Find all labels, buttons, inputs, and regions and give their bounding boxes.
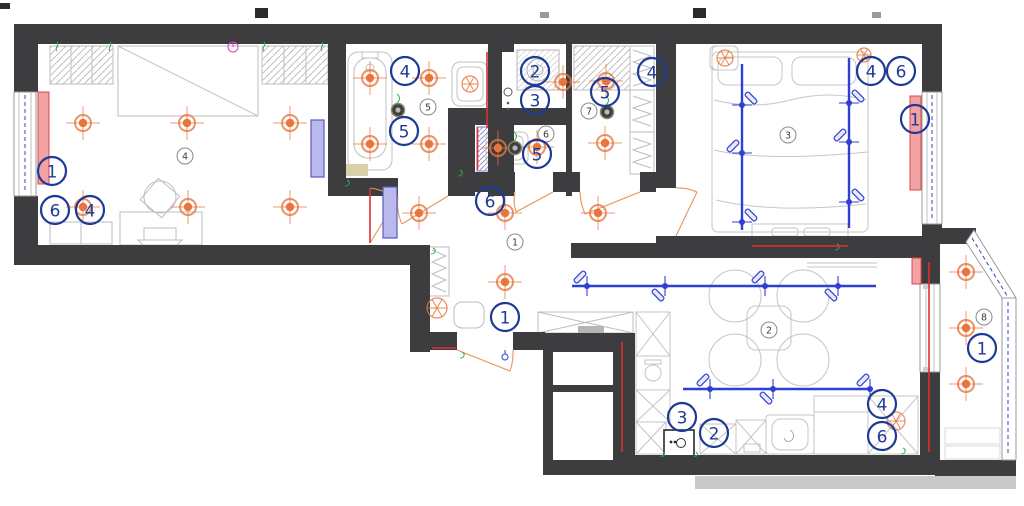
callout-6: 6 bbox=[41, 196, 69, 224]
track-spot-icon bbox=[696, 373, 709, 386]
svg-text:6: 6 bbox=[50, 201, 61, 221]
callout-3: 3 bbox=[668, 403, 696, 431]
svg-text:6: 6 bbox=[543, 129, 549, 140]
closet-door bbox=[580, 192, 640, 214]
wc-door bbox=[514, 192, 553, 212]
bath-mat bbox=[346, 164, 368, 176]
ceiling-light-icon bbox=[273, 190, 307, 224]
svg-text:1: 1 bbox=[910, 110, 921, 130]
track-light bbox=[683, 373, 873, 404]
room-number: 5 bbox=[420, 99, 436, 115]
fridge bbox=[814, 396, 868, 454]
svg-text:2: 2 bbox=[530, 62, 541, 82]
floor-plan-page: 45673128 16445235456146114632 bbox=[0, 0, 1024, 506]
dimension-ticks bbox=[0, 3, 881, 18]
room-number: 8 bbox=[976, 309, 992, 325]
svg-text:4: 4 bbox=[182, 151, 188, 162]
room-number: 4 bbox=[177, 148, 193, 164]
svg-text:5: 5 bbox=[425, 102, 431, 113]
ceiling-light-icon bbox=[353, 127, 387, 161]
svg-text:1: 1 bbox=[500, 308, 511, 328]
ceiling-light-icon bbox=[581, 196, 615, 230]
pillow bbox=[718, 57, 782, 85]
door-panel bbox=[311, 120, 324, 177]
track-light bbox=[726, 64, 757, 230]
entrance-door-mark bbox=[502, 350, 508, 360]
ceiling-light-icon bbox=[588, 126, 622, 160]
svg-text:4: 4 bbox=[877, 395, 888, 415]
hall-furniture bbox=[429, 247, 633, 333]
callout-5: 5 bbox=[390, 117, 418, 145]
svg-text:5: 5 bbox=[399, 122, 410, 142]
service-strip bbox=[504, 88, 512, 110]
ceiling-light-icon bbox=[949, 367, 983, 401]
window-bedroom bbox=[922, 92, 942, 224]
window-living-balcony bbox=[920, 284, 940, 372]
track-spot-icon bbox=[744, 208, 757, 221]
wardrobe-left bbox=[50, 46, 113, 84]
svg-text:4: 4 bbox=[866, 62, 877, 82]
svg-text:5: 5 bbox=[600, 83, 611, 103]
track-spot-icon bbox=[726, 139, 739, 152]
oven bbox=[636, 356, 670, 390]
track-spot-icon bbox=[651, 288, 664, 301]
callout-1: 1 bbox=[491, 303, 519, 331]
svg-text:4: 4 bbox=[85, 201, 96, 221]
track-spot-icon bbox=[573, 270, 586, 283]
track-light bbox=[833, 58, 864, 228]
svg-text:3: 3 bbox=[677, 408, 688, 428]
room-number: 7 bbox=[581, 103, 597, 119]
track-spot-icon bbox=[851, 188, 864, 201]
svg-text:6: 6 bbox=[896, 62, 907, 82]
callout-2: 2 bbox=[700, 419, 728, 447]
svg-text:3: 3 bbox=[785, 130, 791, 141]
wardrobe-right bbox=[262, 46, 328, 84]
svg-text:7: 7 bbox=[586, 106, 592, 117]
ceiling-light-icon bbox=[66, 106, 100, 140]
track-spot-icon bbox=[851, 89, 864, 102]
svg-text:1: 1 bbox=[47, 162, 58, 182]
shaft-openings bbox=[553, 352, 613, 460]
ceiling-light-icon bbox=[273, 106, 307, 140]
fan-icon bbox=[462, 76, 478, 92]
fan-icon bbox=[712, 46, 738, 70]
bedroom-door bbox=[676, 188, 697, 236]
track-spot-icon bbox=[824, 288, 837, 301]
desk-chair bbox=[144, 181, 176, 213]
callout-1: 1 bbox=[968, 334, 996, 362]
room-numbers-layer: 45673128 bbox=[177, 99, 992, 338]
svg-text:2: 2 bbox=[766, 325, 772, 336]
room-number: 2 bbox=[761, 322, 777, 338]
dishwasher bbox=[664, 430, 694, 456]
pouf bbox=[454, 302, 484, 328]
track-spot-icon bbox=[759, 391, 772, 404]
radiator bbox=[912, 258, 921, 284]
room-number: 1 bbox=[507, 234, 523, 250]
svg-text:1: 1 bbox=[512, 237, 518, 248]
svg-text:4: 4 bbox=[400, 62, 411, 82]
callout-4: 4 bbox=[391, 57, 419, 85]
track-light bbox=[572, 270, 876, 301]
callout-4: 4 bbox=[868, 390, 896, 418]
vent-fan-icon bbox=[392, 94, 405, 117]
track-spot-icon bbox=[744, 91, 757, 104]
svg-text:4: 4 bbox=[647, 63, 658, 83]
door-panel bbox=[383, 187, 397, 238]
fan-icon bbox=[427, 298, 447, 318]
floor-plan: 45673128 16445235456146114632 bbox=[0, 0, 1024, 506]
callout-4: 4 bbox=[857, 57, 885, 85]
window-left bbox=[14, 92, 36, 196]
svg-text:5: 5 bbox=[532, 145, 543, 165]
kitchen-sink bbox=[766, 415, 814, 454]
svg-text:6: 6 bbox=[485, 192, 496, 212]
terrace-shadow bbox=[695, 476, 1016, 489]
svg-text:2: 2 bbox=[709, 424, 720, 444]
ceiling-light-icon bbox=[488, 265, 522, 299]
svg-text:3: 3 bbox=[530, 91, 541, 111]
ceiling-light-icon bbox=[402, 196, 436, 230]
ceiling-light-icon bbox=[353, 61, 387, 95]
svg-text:8: 8 bbox=[981, 312, 987, 323]
svg-text:6: 6 bbox=[877, 427, 888, 447]
pillow bbox=[792, 57, 856, 85]
svg-text:1: 1 bbox=[977, 339, 988, 359]
printer bbox=[144, 228, 176, 240]
callout-6: 6 bbox=[868, 422, 896, 450]
track-spot-icon bbox=[833, 128, 846, 141]
room-number: 3 bbox=[780, 127, 796, 143]
track-spot-icon bbox=[856, 373, 869, 386]
callout-6: 6 bbox=[887, 57, 915, 85]
